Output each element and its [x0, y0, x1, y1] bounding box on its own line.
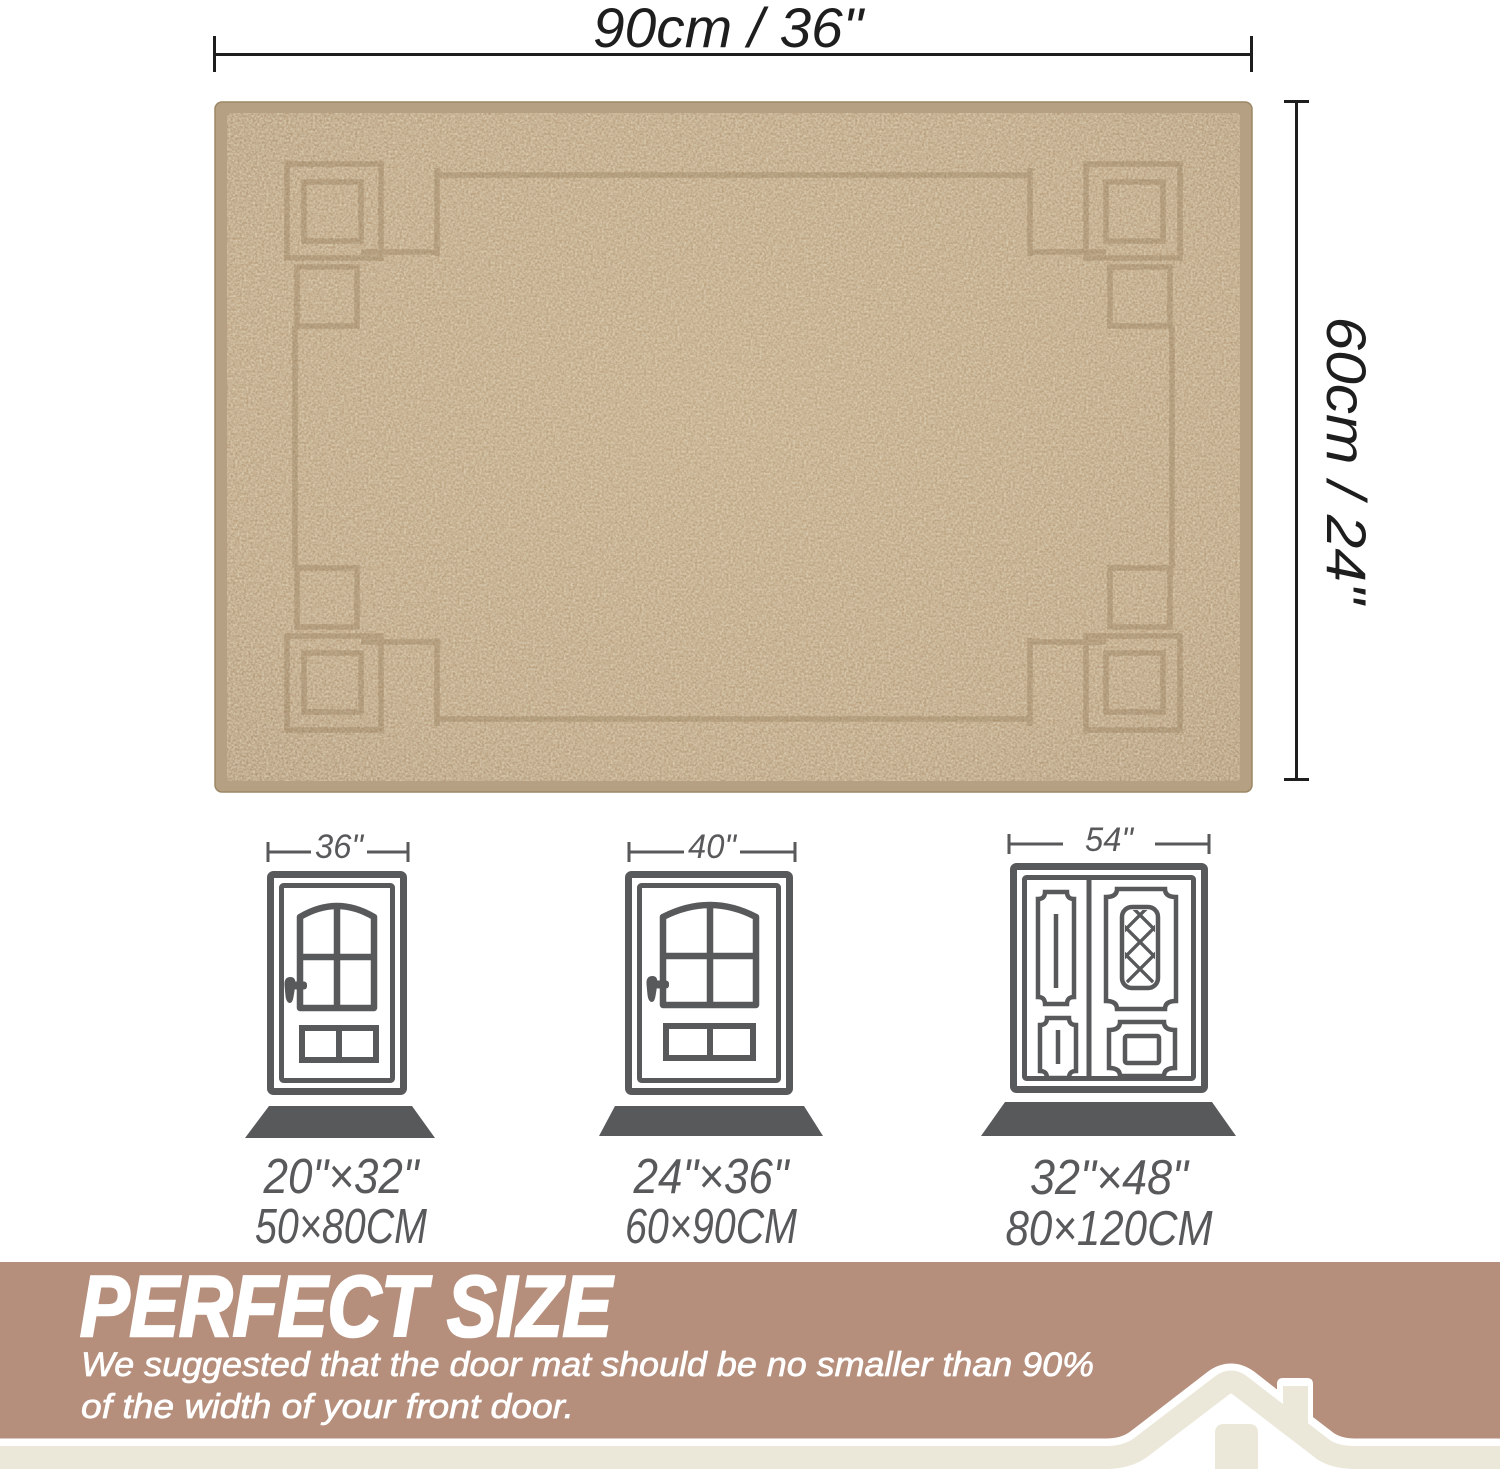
svg-text:PERFECT SIZE: PERFECT SIZE	[80, 1259, 614, 1355]
svg-text:24"×36": 24"×36"	[633, 1150, 791, 1204]
svg-text:We suggested that the door mat: We suggested that the door mat should be…	[81, 1346, 1094, 1384]
svg-text:40": 40"	[688, 828, 738, 866]
svg-text:36": 36"	[315, 828, 365, 866]
svg-text:60cm / 24": 60cm / 24"	[1315, 317, 1378, 606]
svg-text:60×90CM: 60×90CM	[625, 1200, 797, 1254]
svg-text:80×120CM: 80×120CM	[1006, 1202, 1213, 1256]
svg-text:54": 54"	[1085, 821, 1135, 859]
svg-text:of the width of your front doo: of the width of your front door.	[81, 1388, 574, 1426]
svg-text:50×80CM: 50×80CM	[255, 1200, 427, 1254]
svg-text:20"×32": 20"×32"	[263, 1150, 421, 1204]
svg-text:32"×48": 32"×48"	[1030, 1151, 1190, 1205]
svg-text:90cm / 36": 90cm / 36"	[593, 0, 865, 59]
